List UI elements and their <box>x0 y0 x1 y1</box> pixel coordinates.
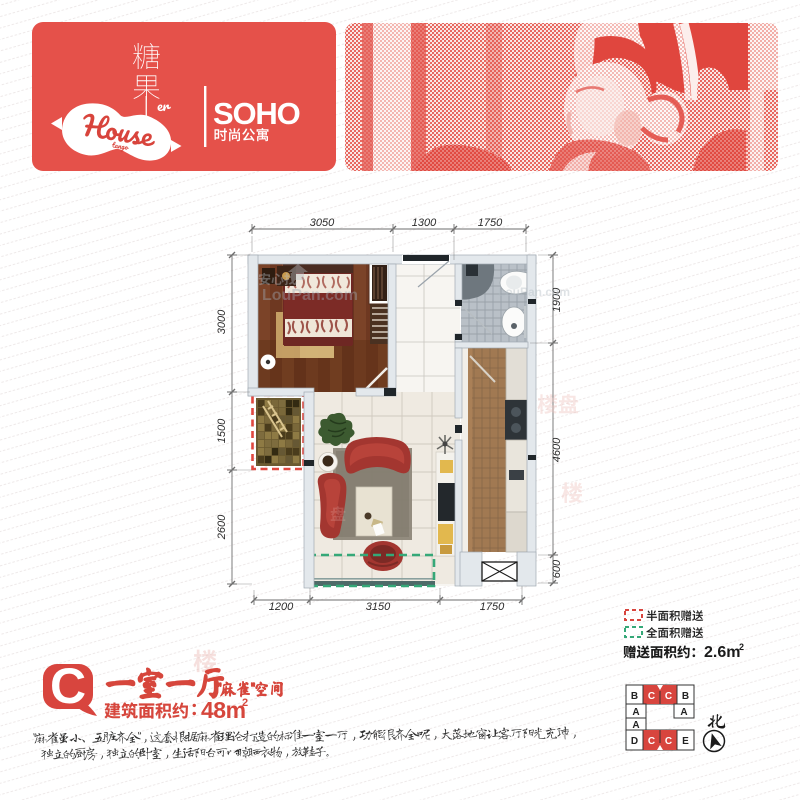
svg-text:A: A <box>632 720 639 731</box>
svg-text:C: C <box>50 658 86 714</box>
svg-text:4600: 4600 <box>551 437 563 462</box>
svg-text:48m: 48m <box>201 697 246 723</box>
svg-text:C: C <box>665 691 672 702</box>
svg-text:2: 2 <box>242 697 248 709</box>
svg-text:1500: 1500 <box>216 418 228 443</box>
svg-text:A: A <box>680 707 687 718</box>
svg-text:1200: 1200 <box>269 601 294 613</box>
svg-text:3050: 3050 <box>310 217 335 229</box>
svg-text:LouPan.com: LouPan.com <box>262 287 358 304</box>
svg-text:600: 600 <box>551 559 563 578</box>
svg-text:C: C <box>665 736 672 747</box>
svg-text:D: D <box>631 736 638 747</box>
svg-text:2.6m: 2.6m <box>704 644 740 661</box>
svg-text:1300: 1300 <box>412 217 437 229</box>
svg-text:LouPan.com: LouPan.com <box>498 285 570 299</box>
svg-text:B: B <box>682 691 689 702</box>
svg-text:SOHO: SOHO <box>213 96 300 131</box>
svg-text:2600: 2600 <box>216 514 228 540</box>
svg-text:1750: 1750 <box>478 217 503 229</box>
svg-text:3000: 3000 <box>216 309 228 334</box>
svg-text:B: B <box>631 691 638 702</box>
svg-text:A: A <box>632 707 639 718</box>
svg-text:2: 2 <box>739 642 744 652</box>
svg-text:C: C <box>648 736 655 747</box>
svg-text:3150: 3150 <box>366 601 391 613</box>
svg-text:1750: 1750 <box>480 601 505 613</box>
svg-text:C: C <box>648 691 655 702</box>
svg-text:E: E <box>682 736 689 747</box>
